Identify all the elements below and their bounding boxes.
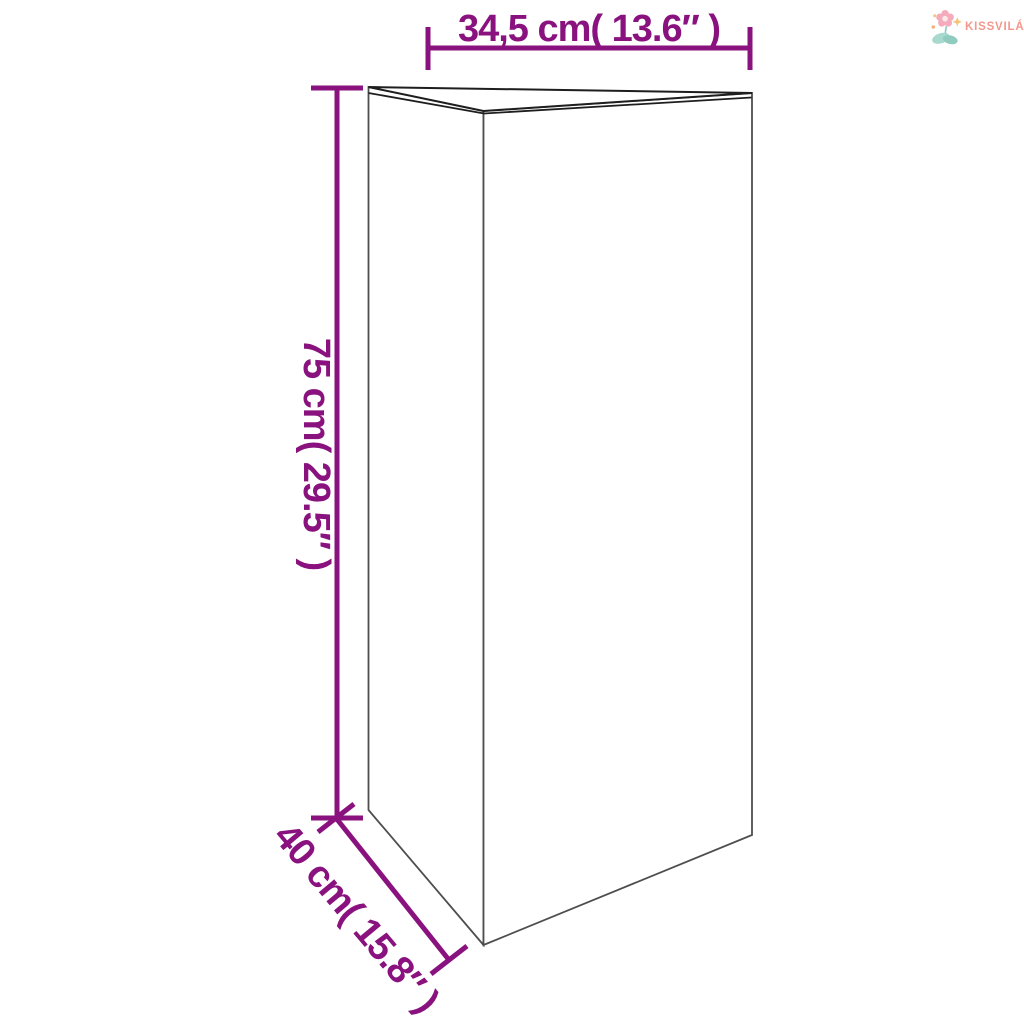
brand-name: KISSVILÁG [965, 21, 1024, 33]
brand-logo: KISSVILÁG [930, 6, 1022, 48]
line-art [0, 0, 1024, 1024]
depth-dimension-tick-bottom [431, 946, 467, 974]
flower-logo-icon [930, 8, 962, 46]
logo-dot-orange [932, 25, 936, 29]
prism-outline [369, 87, 753, 945]
product-dimension-image: 34,5 cm( 13.6″ ) 75 cm( 29.5″ ) 40 cm( 1… [0, 0, 1024, 1024]
logo-sparkle-star [953, 17, 962, 26]
width-dimension-label: 34,5 cm( 13.6″ ) [458, 10, 720, 48]
height-dimension-label: 75 cm( 29.5″ ) [297, 338, 335, 570]
prism-left-face [369, 87, 484, 945]
prism-right-face [484, 93, 753, 945]
logo-dot-small [933, 14, 936, 17]
logo-flower [936, 10, 954, 27]
